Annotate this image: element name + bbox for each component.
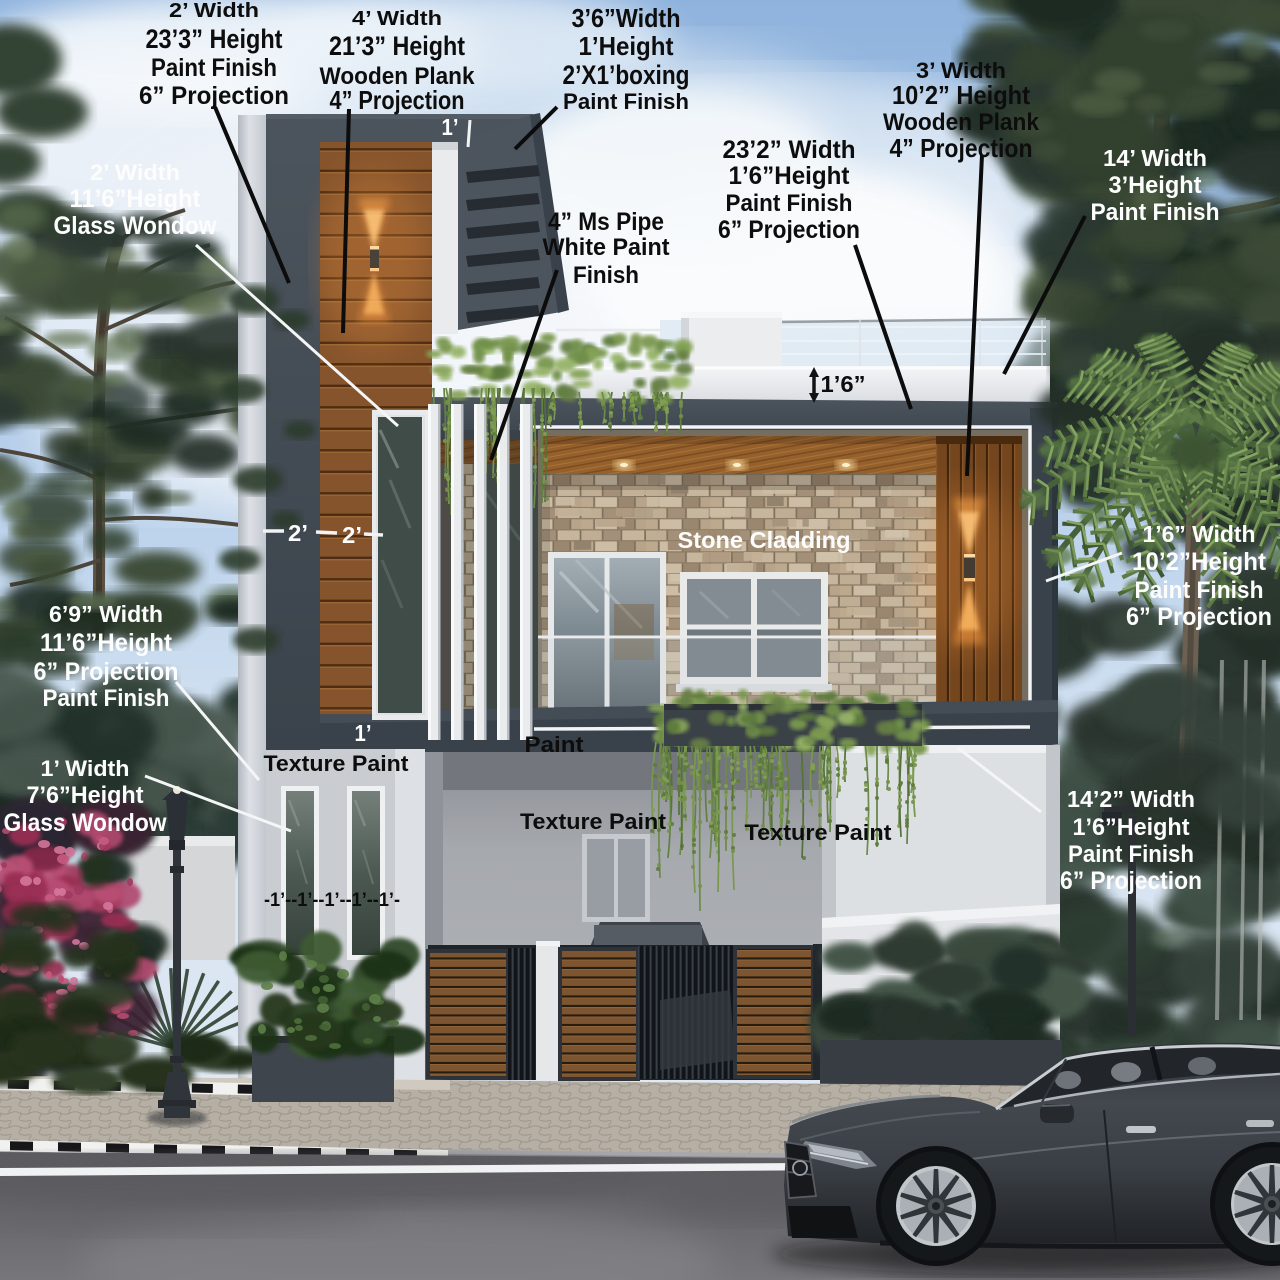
- svg-text:6” Projection: 6” Projection: [139, 82, 289, 110]
- svg-text:6’9” Width: 6’9” Width: [49, 601, 163, 627]
- svg-text:14’2” Width: 14’2” Width: [1067, 786, 1195, 812]
- svg-text:6” Projection: 6” Projection: [718, 216, 860, 244]
- svg-text:1’: 1’: [355, 720, 372, 746]
- svg-text:1’ Width: 1’ Width: [41, 756, 130, 781]
- svg-text:Finish: Finish: [573, 262, 639, 289]
- svg-text:10’2”Height: 10’2”Height: [1132, 548, 1267, 576]
- svg-text:6” Projection: 6” Projection: [1060, 867, 1202, 895]
- svg-text:Paint Finish: Paint Finish: [726, 190, 853, 217]
- svg-text:4” Ms Pipe: 4” Ms Pipe: [548, 208, 664, 236]
- svg-text:2’: 2’: [288, 520, 308, 546]
- svg-text:Paint Finish: Paint Finish: [151, 54, 277, 82]
- svg-text:7’6”Height: 7’6”Height: [27, 782, 144, 809]
- svg-text:-1’--1’--1’--1’--1’-: -1’--1’--1’--1’--1’-: [264, 890, 400, 911]
- svg-text:2’ Width: 2’ Width: [90, 160, 180, 185]
- svg-text:2’ Width: 2’ Width: [169, 0, 259, 22]
- svg-text:23’2” Width: 23’2” Width: [723, 136, 856, 164]
- svg-text:Paint Finish: Paint Finish: [1091, 199, 1220, 226]
- svg-text:14’ Width: 14’ Width: [1103, 145, 1207, 171]
- svg-text:Stone Cladding: Stone Cladding: [678, 527, 851, 553]
- svg-text:2’: 2’: [342, 522, 362, 548]
- svg-text:Glass Wondow: Glass Wondow: [54, 212, 217, 240]
- svg-text:Paint Finish: Paint Finish: [1135, 577, 1264, 604]
- svg-text:Texture Paint: Texture Paint: [264, 751, 410, 776]
- svg-text:1’6”Height: 1’6”Height: [1073, 814, 1190, 841]
- svg-text:Paint Finish: Paint Finish: [43, 685, 170, 712]
- svg-text:4’ Width: 4’ Width: [352, 8, 442, 30]
- svg-text:4” Projection: 4” Projection: [890, 133, 1033, 163]
- svg-text:4” Projection: 4” Projection: [330, 85, 465, 115]
- svg-text:11’6”Height: 11’6”Height: [40, 629, 173, 657]
- svg-text:11’6”Height: 11’6”Height: [70, 185, 202, 213]
- svg-text:Wooden Plank: Wooden Plank: [883, 109, 1040, 136]
- svg-text:1’6”: 1’6”: [821, 371, 866, 397]
- svg-text:Texture Paint: Texture Paint: [520, 809, 667, 834]
- svg-text:Glass Wondow: Glass Wondow: [4, 809, 167, 837]
- svg-text:10’2” Height: 10’2” Height: [892, 80, 1030, 110]
- svg-text:6” Projection: 6” Projection: [34, 658, 179, 686]
- svg-text:23’3” Height: 23’3” Height: [146, 24, 283, 54]
- svg-text:1’: 1’: [442, 114, 459, 140]
- svg-text:Texture Paint: Texture Paint: [745, 820, 893, 845]
- svg-text:3’Height: 3’Height: [1109, 172, 1202, 199]
- svg-text:White Paint: White Paint: [543, 234, 670, 261]
- svg-text:21’3” Height: 21’3” Height: [329, 31, 465, 61]
- svg-text:Paint Finish: Paint Finish: [563, 89, 689, 114]
- svg-text:1’Height: 1’Height: [579, 31, 674, 61]
- svg-text:Paint Finish: Paint Finish: [1068, 841, 1194, 868]
- svg-text:1’6”Height: 1’6”Height: [729, 162, 851, 190]
- svg-text:1’6” Width: 1’6” Width: [1143, 521, 1256, 547]
- svg-text:3’6”Width: 3’6”Width: [572, 3, 681, 33]
- svg-text:2’X1’boxing: 2’X1’boxing: [563, 60, 690, 90]
- svg-text:6” Projection: 6” Projection: [1126, 603, 1272, 631]
- svg-text:Paint: Paint: [525, 732, 585, 757]
